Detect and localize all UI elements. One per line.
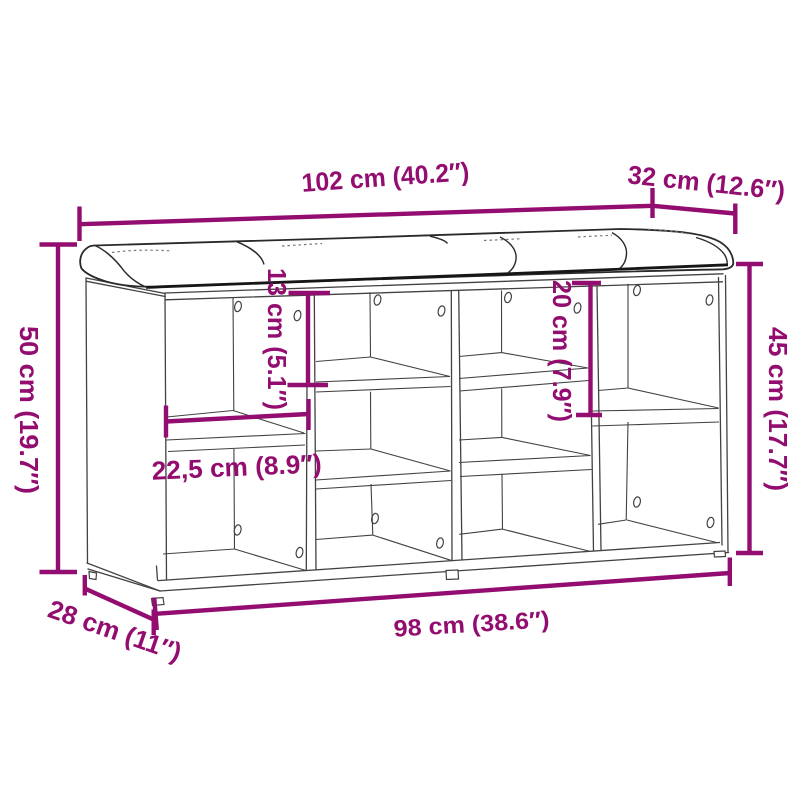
svg-text:45 cm (17.7″): 45 cm (17.7″) bbox=[763, 327, 793, 491]
svg-text:20 cm (7.9″): 20 cm (7.9″) bbox=[547, 280, 577, 422]
svg-text:50 cm (19.7″): 50 cm (19.7″) bbox=[14, 326, 44, 494]
svg-text:13 cm (5.1″): 13 cm (5.1″) bbox=[262, 268, 292, 410]
